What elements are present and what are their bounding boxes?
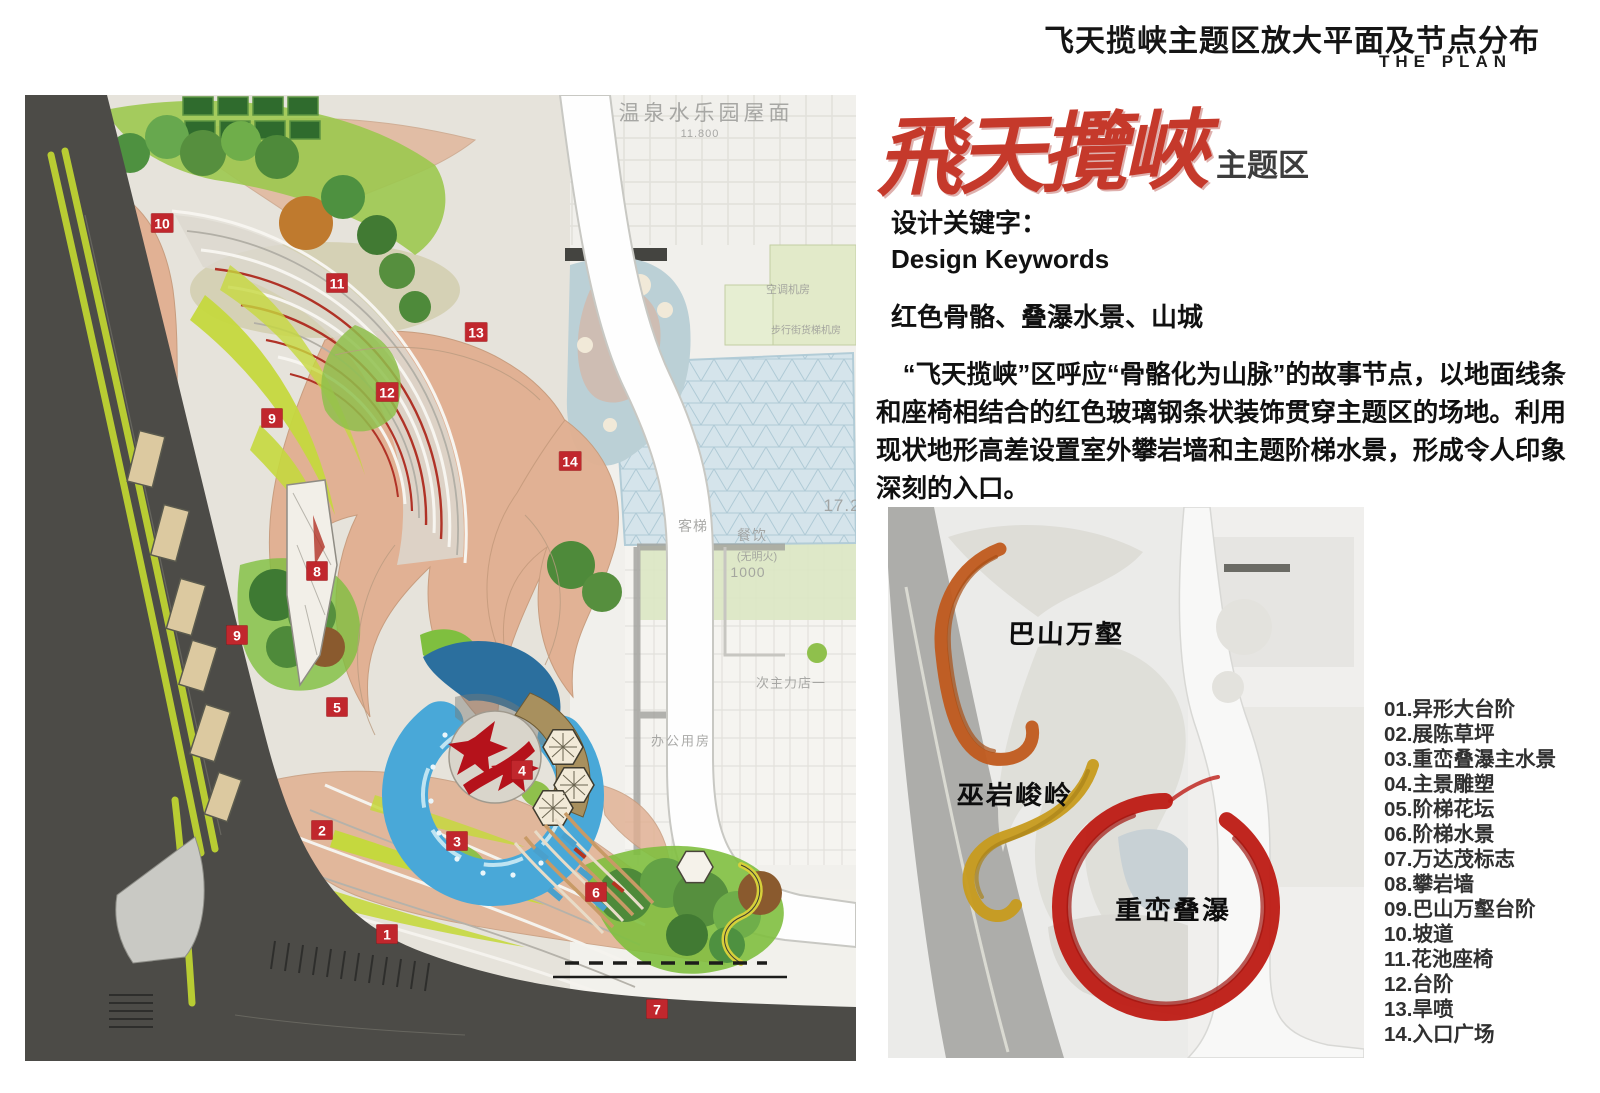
- legend-item: 14.入口广场: [1384, 1022, 1556, 1047]
- faint-cad-label: (无明火): [737, 548, 777, 564]
- inset-concept-label: 重峦叠瀑: [1114, 889, 1231, 926]
- inset-concept-label: 巫岩峻岭: [956, 774, 1073, 811]
- legend-item: 12.台阶: [1384, 972, 1556, 997]
- faint-cad-label: 温泉水乐园屋面: [619, 97, 794, 127]
- legend-item: 03.重峦叠瀑主水景: [1384, 747, 1556, 772]
- node-marker-9: 9: [227, 626, 248, 645]
- inset-concept-label: 巴山万壑: [1007, 613, 1124, 650]
- design-keywords-heading: 设计关键字： Design Keywords: [891, 205, 1109, 277]
- description-paragraph: “飞天揽峡”区呼应“骨骼化为山脉”的故事节点，以地面线条和座椅相结合的红色玻璃钢…: [876, 356, 1566, 508]
- node-legend-list: 01.异形大台阶02.展陈草坪03.重峦叠瀑主水景04.主景雕塑05.阶梯花坛0…: [1384, 697, 1556, 1047]
- design-keywords-value: 红色骨骼、叠瀑水景、山城: [891, 297, 1203, 334]
- presentation-page: 飞天揽峡主题区放大平面及节点分布 THE PLAN 飛天攬峽主题区 设计关键字：…: [0, 0, 1600, 1093]
- faint-cad-label: 办公用房: [651, 731, 711, 750]
- legend-item: 01.异形大台阶: [1384, 697, 1556, 722]
- faint-cad-label: 步行街货梯机房: [771, 322, 841, 337]
- faint-cad-label: 餐饮: [737, 525, 767, 545]
- node-marker-4: 4: [512, 761, 533, 780]
- node-marker-7: 7: [647, 1000, 668, 1019]
- faint-cad-label: 17.2: [823, 496, 856, 516]
- legend-item: 09.巴山万壑台阶: [1384, 897, 1556, 922]
- faint-cad-label: 空调机房: [766, 281, 810, 297]
- legend-item: 10.坡道: [1384, 922, 1556, 947]
- faint-cad-label: 1000: [730, 564, 765, 580]
- design-keywords-zh: 设计关键字：: [891, 205, 1109, 241]
- theme-title: 飛天攬峽主题区: [876, 84, 1309, 209]
- legend-item: 11.花池座椅: [1384, 947, 1556, 972]
- legend-item: 04.主景雕塑: [1384, 772, 1556, 797]
- concept-inset-diagram: 巴山万壑巫岩峻岭重峦叠瀑: [888, 507, 1364, 1058]
- node-marker-13: 13: [465, 323, 487, 342]
- legend-item: 07.万达茂标志: [1384, 847, 1556, 872]
- node-marker-3: 3: [447, 832, 468, 851]
- design-keywords-en: Design Keywords: [891, 241, 1109, 277]
- node-marker-14: 14: [559, 452, 581, 471]
- legend-item: 06.阶梯水景: [1384, 822, 1556, 847]
- legend-item: 05.阶梯花坛: [1384, 797, 1556, 822]
- node-marker-10: 10: [151, 214, 173, 233]
- node-marker-8: 8: [307, 562, 328, 581]
- faint-cad-label: 次主力店一: [756, 673, 826, 692]
- node-marker-9: 9: [262, 409, 283, 428]
- master-plan-drawing: 温泉水乐园屋面11.800空调机房步行街货梯机房客梯餐饮(无明火)100017.…: [25, 95, 856, 1061]
- theme-zone-label: 主题区: [1216, 140, 1309, 185]
- page-subtitle: THE PLAN: [1379, 52, 1512, 72]
- node-marker-6: 6: [586, 883, 607, 902]
- legend-item: 08.攀岩墙: [1384, 872, 1556, 897]
- legend-item: 13.旱喷: [1384, 997, 1556, 1022]
- faint-cad-label: 11.800: [681, 128, 720, 140]
- node-marker-12: 12: [376, 383, 398, 402]
- node-marker-2: 2: [312, 821, 333, 840]
- theme-calligraphy: 飛天攬峽: [874, 80, 1205, 214]
- faint-cad-label: 客梯: [678, 516, 708, 536]
- node-marker-11: 11: [327, 274, 348, 293]
- node-marker-5: 5: [327, 698, 348, 717]
- legend-item: 02.展陈草坪: [1384, 722, 1556, 747]
- node-marker-1: 1: [377, 925, 398, 944]
